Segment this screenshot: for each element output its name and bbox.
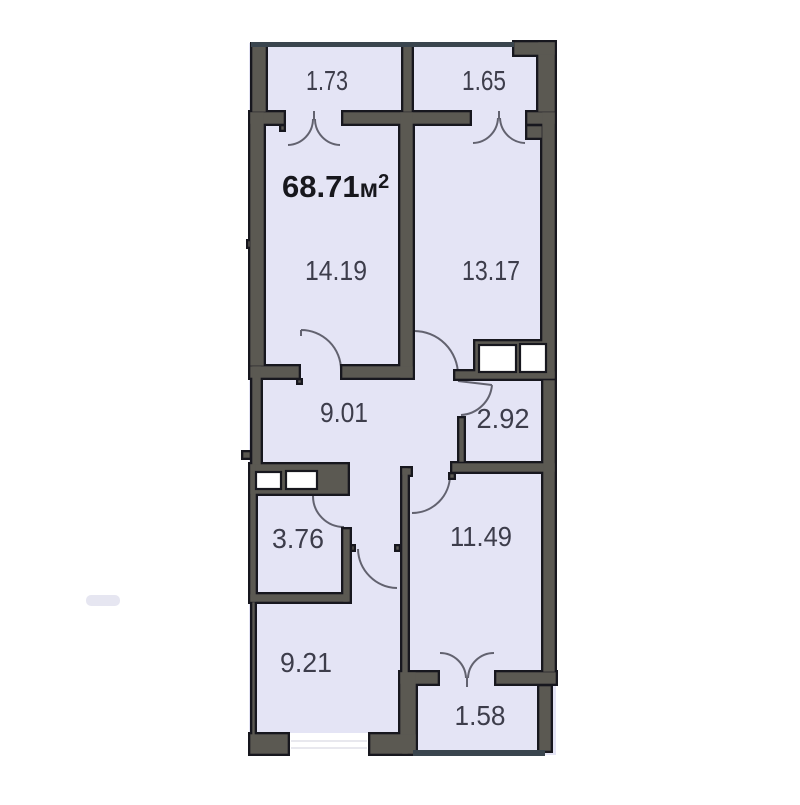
svg-text:13.17: 13.17 xyxy=(462,255,520,286)
svg-text:2.92: 2.92 xyxy=(477,403,530,434)
svg-text:9.01: 9.01 xyxy=(320,397,368,428)
svg-text:11.49: 11.49 xyxy=(450,521,512,552)
svg-text:1.58: 1.58 xyxy=(455,700,506,731)
svg-text:1.73: 1.73 xyxy=(306,65,348,96)
svg-text:9.21: 9.21 xyxy=(280,647,332,678)
svg-text:3.76: 3.76 xyxy=(272,523,324,554)
svg-text:1.65: 1.65 xyxy=(462,65,506,96)
svg-text:68.71м2: 68.71м2 xyxy=(282,169,389,204)
svg-text:14.19: 14.19 xyxy=(305,255,367,286)
